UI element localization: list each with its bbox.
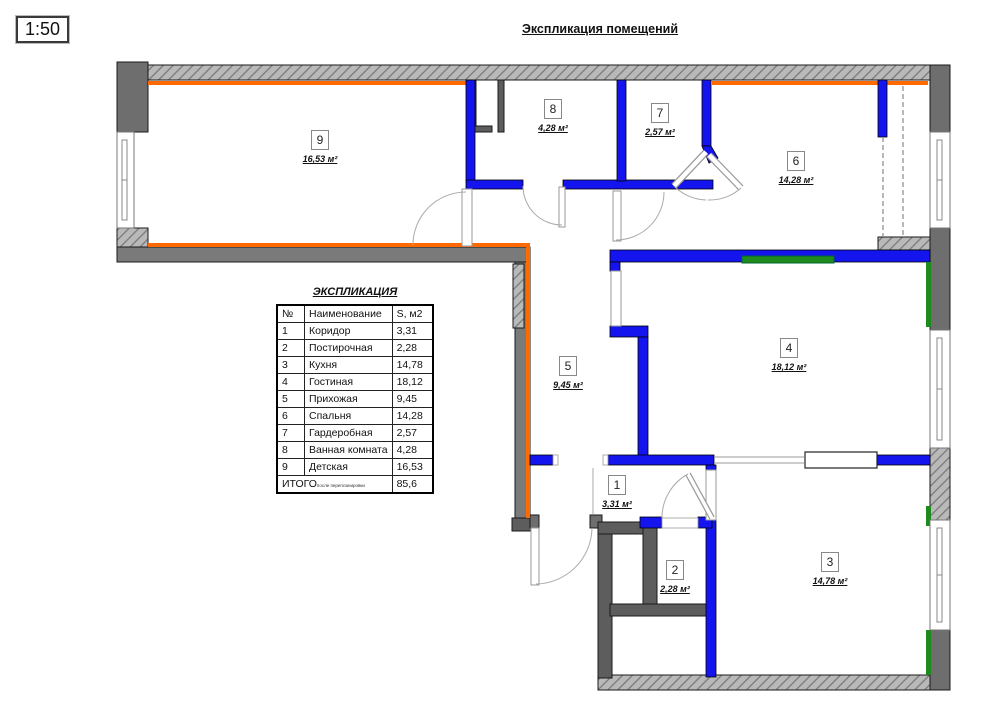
room-label-8: 8 4,28 м² (513, 99, 593, 133)
table-row: 7 Гардеробная 2,57 (277, 425, 433, 442)
row-area: 18,12 (392, 374, 433, 391)
table-row: 8 Ванная комната 4,28 (277, 442, 433, 459)
row-name: Гостиная (304, 374, 392, 391)
room-area-5: 9,45 м² (528, 380, 608, 390)
row-num: 8 (277, 442, 304, 459)
row-name: Коридор (304, 323, 392, 340)
row-area: 14,78 (392, 357, 433, 374)
room-area-6: 14,28 м² (756, 175, 836, 185)
table-row: 3 Кухня 14,78 (277, 357, 433, 374)
row-area: 14,28 (392, 408, 433, 425)
room-area-1: 3,31 м² (577, 499, 657, 509)
row-area: 16,53 (392, 459, 433, 476)
total-note: после перепланировки (317, 483, 365, 488)
total-label-cell: ИТОГОпосле перепланировки (277, 476, 392, 494)
row-num: 7 (277, 425, 304, 442)
explication-table: № Наименование S, м2 1 Коридор 3,31 2 По… (276, 304, 434, 494)
room-number-5: 5 (559, 356, 578, 376)
table-header-row: № Наименование S, м2 (277, 305, 433, 323)
row-num: 3 (277, 357, 304, 374)
table-row: 5 Прихожая 9,45 (277, 391, 433, 408)
row-area: 9,45 (392, 391, 433, 408)
table-row: 6 Спальня 14,28 (277, 408, 433, 425)
row-name: Ванная комната (304, 442, 392, 459)
row-num: 2 (277, 340, 304, 357)
row-name: Детская (304, 459, 392, 476)
room-label-4: 4 18,12 м² (749, 338, 829, 372)
row-num: 6 (277, 408, 304, 425)
table-row: 9 Детская 16,53 (277, 459, 433, 476)
room-number-1: 1 (608, 475, 627, 495)
floor-plan-page: 1:50 Экспликация помещений (0, 0, 990, 712)
row-name: Постирочная (304, 340, 392, 357)
row-num: 1 (277, 323, 304, 340)
row-name: Гардеробная (304, 425, 392, 442)
room-number-8: 8 (544, 99, 563, 119)
table-row: 4 Гостиная 18,12 (277, 374, 433, 391)
room-label-5: 5 9,45 м² (528, 356, 608, 390)
col-header-num: № (277, 305, 304, 323)
row-num: 4 (277, 374, 304, 391)
row-area: 4,28 (392, 442, 433, 459)
room-area-2: 2,28 м² (635, 584, 715, 594)
total-value: 85,6 (392, 476, 433, 494)
table-row: 2 Постирочная 2,28 (277, 340, 433, 357)
row-name: Прихожая (304, 391, 392, 408)
room-label-7: 7 2,57 м² (620, 103, 700, 137)
room-label-2: 2 2,28 м² (635, 560, 715, 594)
room-label-6: 6 14,28 м² (756, 151, 836, 185)
row-area: 3,31 (392, 323, 433, 340)
row-num: 5 (277, 391, 304, 408)
row-area: 2,57 (392, 425, 433, 442)
floor-plan-drawing (0, 0, 990, 712)
room-number-2: 2 (666, 560, 685, 580)
room-area-7: 2,57 м² (620, 127, 700, 137)
shaft-walls (598, 522, 708, 678)
row-num: 9 (277, 459, 304, 476)
room-label-9: 9 16,53 м² (280, 130, 360, 164)
legend: ЭКСПЛИКАЦИЯ № Наименование S, м2 1 Корид… (276, 286, 434, 494)
room-area-9: 16,53 м² (280, 154, 360, 164)
room-number-4: 4 (780, 338, 799, 358)
room-label-1: 1 3,31 м² (577, 475, 657, 509)
table-total-row: ИТОГОпосле перепланировки 85,6 (277, 476, 433, 494)
row-area: 2,28 (392, 340, 433, 357)
room-label-3: 3 14,78 м² (790, 552, 870, 586)
row-name: Кухня (304, 357, 392, 374)
table-row: 1 Коридор 3,31 (277, 323, 433, 340)
room-number-9: 9 (311, 130, 330, 150)
col-header-area: S, м2 (392, 305, 433, 323)
room-area-8: 4,28 м² (513, 123, 593, 133)
row-name: Спальня (304, 408, 392, 425)
col-header-name: Наименование (304, 305, 392, 323)
room-number-7: 7 (651, 103, 670, 123)
room-number-6: 6 (787, 151, 806, 171)
room-area-3: 14,78 м² (790, 576, 870, 586)
legend-title: ЭКСПЛИКАЦИЯ (276, 286, 434, 298)
room-area-4: 18,12 м² (749, 362, 829, 372)
total-label: ИТОГО (282, 478, 317, 490)
room-number-3: 3 (821, 552, 840, 572)
